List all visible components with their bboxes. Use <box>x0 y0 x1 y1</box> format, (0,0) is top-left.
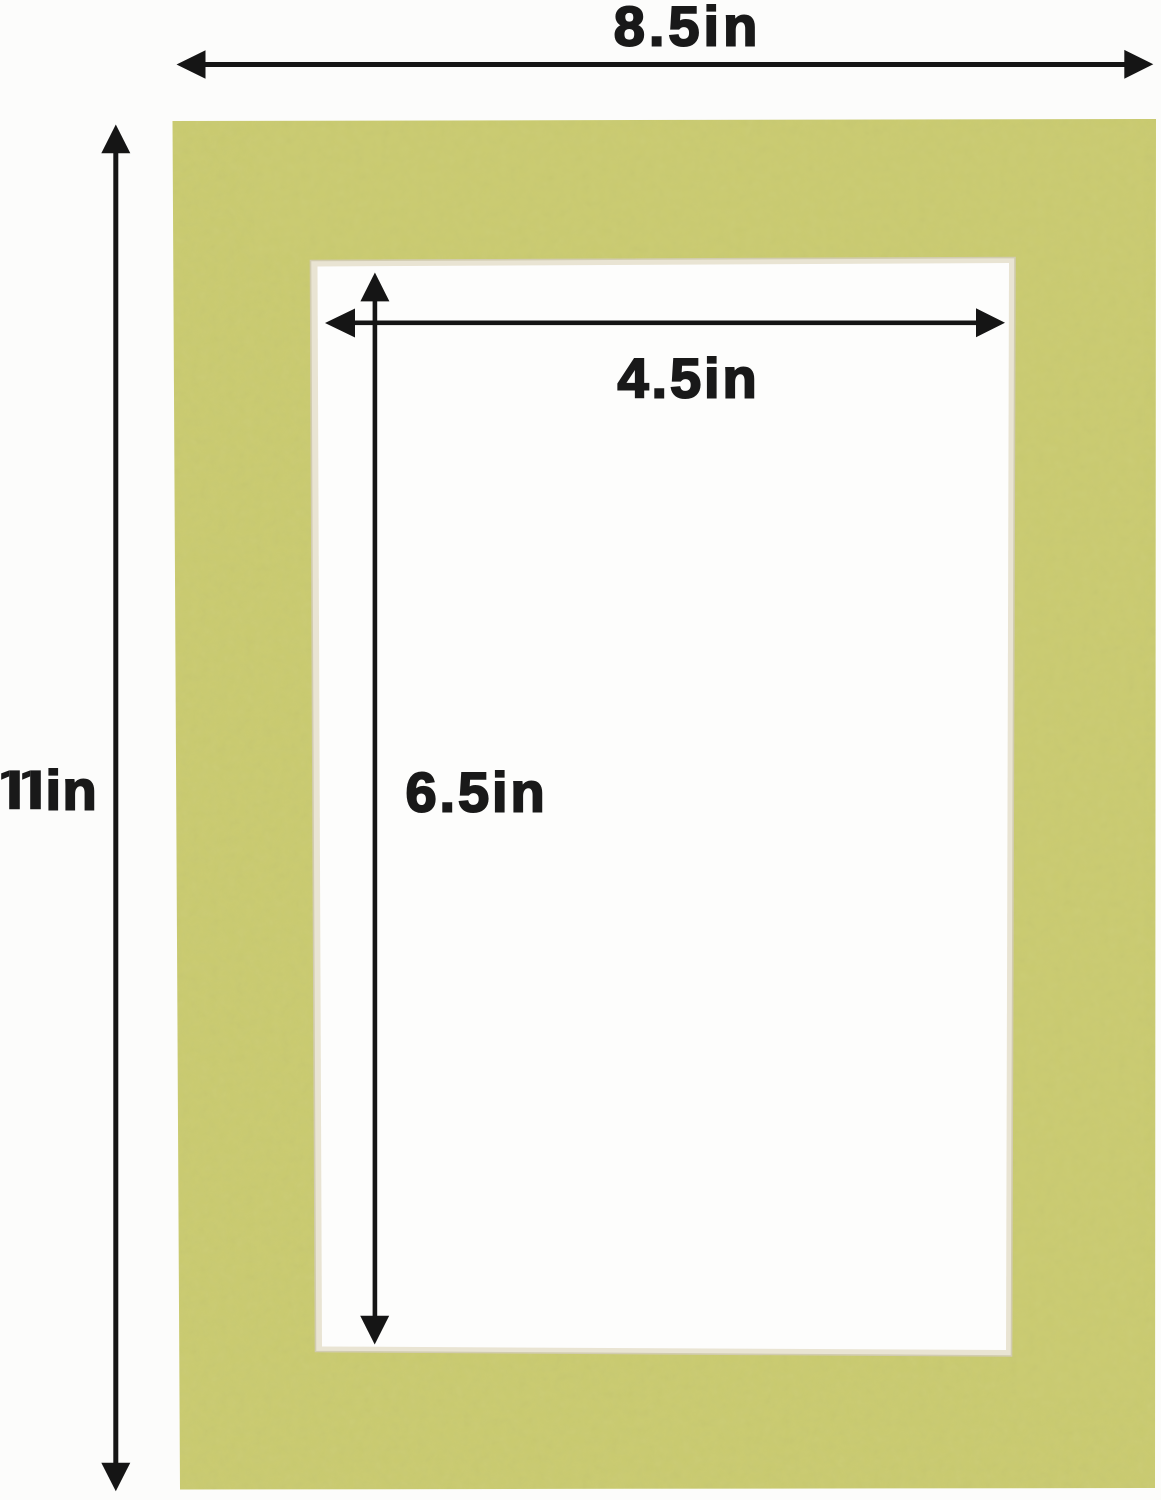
svg-text:in: in <box>46 758 99 821</box>
svg-text:6.5in: 6.5in <box>405 761 547 824</box>
svg-text:4.5in: 4.5in <box>617 346 759 409</box>
svg-text:8.5in: 8.5in <box>614 0 762 57</box>
